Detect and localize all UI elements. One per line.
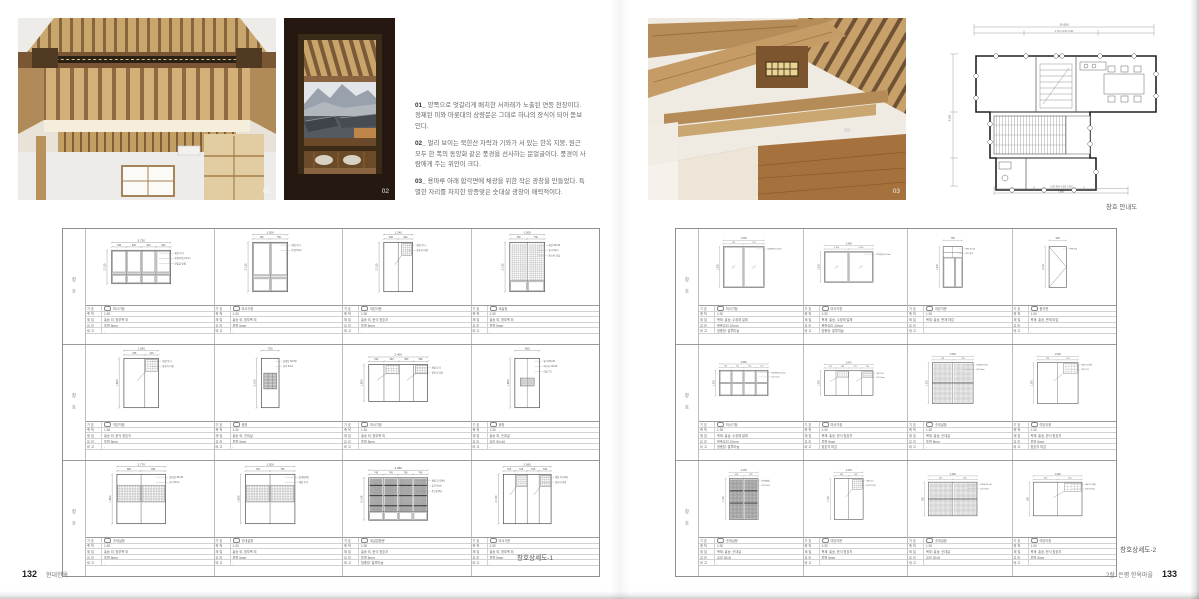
svg-text:1,500: 1,500: [741, 237, 748, 240]
svg-text:세살 무늬: 세살 무늬: [174, 251, 183, 255]
photo-attic-beams: 03: [648, 18, 906, 200]
window-symbol-icon: [361, 422, 368, 427]
svg-text:1,800: 1,800: [505, 379, 509, 386]
window-symbol-icon: [490, 306, 497, 311]
detail-drawing: 2,9757107807757101,500광창 무늬유리 5mm: [804, 345, 908, 421]
grid-row-label: 창 호: [63, 229, 86, 344]
detail-drawing: 1,0506354151,500세살 무늬창호지 마감: [86, 345, 214, 421]
window-symbol-icon: [233, 422, 240, 427]
window-symbol-icon: [104, 538, 111, 543]
caption-01: 01_양쪽으로 엇갈리게 배치한 서까래가 노출된 연등 천장이다. 정제된 미…: [415, 101, 587, 132]
detail-gap: [699, 565, 803, 576]
plan-dim-bottom-segs: 1,300 900 4,280 1,400: [1050, 187, 1074, 189]
svg-text:유리 30×8: 유리 30×8: [761, 483, 770, 487]
svg-text:620: 620: [374, 358, 379, 361]
svg-text:620: 620: [735, 474, 739, 476]
svg-text:625: 625: [854, 474, 857, 476]
detail-spec-table: 기 호여닫이문축 척1:30재 질목재: 홍송, 판재 마감유 리-비 고-: [908, 305, 1012, 333]
svg-text:1,300: 1,300: [950, 473, 957, 476]
svg-text:세살 무늬: 세살 무늬: [291, 243, 300, 247]
svg-text:2,400: 2,400: [845, 242, 852, 245]
detail-grid-row: 창 호1,2456206251,760숫대살(틀)유리 30×8기 호숫대살문축…: [676, 460, 1116, 576]
svg-text:900: 900: [1027, 496, 1029, 501]
svg-text:715: 715: [736, 366, 739, 368]
detail-spec-table: 기 호미서기창축 척1:30재 질목재: 홍송, 수장재 일체유 리복층유리 2…: [699, 305, 803, 333]
detail-spec-table: 기 호숫대살창축 척1:30재 질홍송 외, 방부목 외유 리투명 5mm비 고…: [86, 537, 214, 565]
svg-text:890: 890: [151, 468, 156, 471]
svg-text:415: 415: [150, 352, 155, 355]
window-symbol-icon: [233, 538, 240, 543]
svg-text:1,500: 1,500: [266, 462, 274, 466]
detail-cell: 1,5007457551,500숫대살(특)세살 무늬기 호숫대살창축 척1:3…: [214, 461, 343, 576]
window-symbol-icon: [361, 538, 368, 543]
detail-gap: [86, 565, 214, 576]
detail-gap: [215, 333, 343, 344]
grid-row-label: 창 호: [676, 229, 699, 344]
detail-gap: [86, 449, 214, 460]
svg-text:775: 775: [853, 366, 856, 368]
window-symbol-icon: [361, 306, 368, 311]
detail-spec-table: 기 호미서기창축 척1:30재 질목재: 홍송, 수장재 일체유 리복층유리 2…: [699, 421, 803, 449]
detail-spec-table: 기 호여닫이문축 척1:30재 질홍송 외, 한식 창호지유 리투명 5mm비 …: [343, 305, 471, 333]
detail-spec-table: 기 호광창축 척1:30재 질홍송 외, 숫대살유 리투명 5mm비 고-: [215, 421, 343, 449]
svg-text:간살 7.5: 간살 7.5: [543, 369, 552, 373]
window-symbol-icon: [233, 306, 240, 311]
svg-text:2,130: 2,130: [500, 263, 504, 270]
plan-caption: 창호 안내도: [1106, 202, 1137, 211]
photo-window-view-image: [284, 18, 395, 200]
detail-spec-table: 기 호여닫이창축 척1:30재 질목재: 홍송, 한식 창호지유 리투명 5mm…: [1013, 537, 1117, 565]
svg-text:판재 마감: 판재 마감: [1069, 247, 1077, 251]
detail-gap: [908, 565, 1012, 576]
detail-cell: 1,2456206251,760숫대살(틀)유리 30×8기 호숫대살문축 척1…: [699, 461, 803, 576]
svg-text:750: 750: [516, 236, 521, 239]
plan-dim-top-segs: 2,740 4,430 3,430: [1055, 31, 1074, 33]
detail-drawing: 1,5007507501,500세살 무늬(특)광창 무늬: [1013, 345, 1117, 421]
svg-text:1,500: 1,500: [1031, 379, 1033, 385]
grid-row-label: 창 호: [63, 461, 86, 576]
detail-cell: 2,4006206205805801,500세살 무늬창호지 마감기 호미서기창…: [342, 345, 471, 460]
detail-cell: 7502,100숫대살 30×30유리 5mm기 호광창축 척1:30재 질홍송…: [214, 345, 343, 460]
window-symbol-icon: [104, 306, 111, 311]
detail-cell: 7501,600중판 30×40문선 살대기 호여닫이문축 척1:30재 질목재…: [907, 229, 1012, 344]
svg-text:문선 살대: 문선 살대: [965, 251, 973, 255]
svg-text:650: 650: [1043, 477, 1047, 479]
svg-text:1,500: 1,500: [115, 379, 119, 386]
detail-cell: 2,9807457457457452,145세살 무늬(특)유리 5mm풍소란(…: [342, 461, 471, 576]
svg-text:940: 940: [147, 244, 152, 247]
detail-gap: [908, 449, 1012, 460]
page-gutter: [610, 0, 630, 599]
svg-text:1,760: 1,760: [828, 495, 830, 501]
svg-text:세살 무늬(특): 세살 무늬(특): [554, 475, 567, 479]
svg-text:투명(복층) 5mm: 투명(복층) 5mm: [174, 256, 190, 260]
svg-text:635: 635: [132, 352, 137, 355]
detail-cell: 1,5007507501,500투명(복층) 22mm기 호미서기창축 척1:3…: [699, 229, 803, 344]
svg-text:1,500: 1,500: [818, 379, 820, 385]
detail-cell: 2,4001,2001,2001,500투명(복층) 22mm기 호미서기창축 …: [803, 229, 908, 344]
svg-text:2,400: 2,400: [395, 353, 403, 357]
window-symbol-icon: [926, 306, 933, 311]
svg-text:숫대살 30×30: 숫대살 30×30: [282, 359, 296, 363]
detail-gap: [472, 449, 600, 460]
svg-text:세살 무늬: 세살 무늬: [162, 359, 171, 363]
detail-drawing: 1,2456206251,760세살 무늬창호지 마감: [804, 461, 908, 537]
detail-cell: 1,5007507502,130세살 무늬투명 5mm기 호미서기창축 척1:3…: [214, 229, 343, 344]
detail-gap: [215, 565, 343, 576]
svg-text:2,130: 2,130: [494, 495, 498, 502]
ceiling-main-rafters: [44, 68, 250, 120]
svg-text:1,500: 1,500: [236, 495, 240, 502]
window-symbol-icon: [822, 306, 829, 311]
svg-text:650: 650: [939, 477, 943, 479]
svg-text:900: 900: [1055, 237, 1060, 240]
detail-cell: 2,9757107807757101,500광창 무늬유리 5mm기 호미서기창…: [803, 345, 908, 460]
svg-text:750: 750: [752, 242, 756, 244]
caption-number: 03_: [415, 178, 426, 185]
svg-text:2,980: 2,980: [395, 466, 403, 470]
svg-text:숫대살 30×40: 숫대살 30×40: [976, 363, 988, 367]
detail-cell: 1,0506354151,500세살 무늬창호지 마감기 호여닫이창축 척1:3…: [86, 345, 214, 460]
svg-text:1,500: 1,500: [950, 353, 957, 356]
svg-text:515: 515: [543, 468, 548, 471]
svg-text:650: 650: [1068, 477, 1072, 479]
air-conditioner: [178, 146, 200, 155]
detail-spec-table: 기 호숫대살창축 척1:30재 질홍송 외, 방부목 외유 리투명 5mm비 고…: [215, 537, 343, 565]
detail-cell: 9001,800유리 50×40쇠시리 10×20간살 7.5기 호광창축 척1…: [471, 345, 600, 460]
svg-text:숫대살 30×30: 숫대살 30×30: [169, 475, 183, 479]
svg-text:515: 515: [507, 468, 512, 471]
svg-text:투명(복층) 22mm: 투명(복층) 22mm: [767, 247, 782, 251]
svg-text:715: 715: [724, 366, 727, 368]
svg-text:광창 무늬: 광창 무늬: [876, 371, 884, 375]
caption-03: 03_용마루 아래 합각면에 채광을 위한 작은 광창을 만들었다. 특별한 자…: [415, 177, 587, 198]
detail-grid-row: 창 호3,7509409409409402,130세살 무늬투명(복층) 5mm…: [63, 229, 599, 344]
svg-text:세살 무늬: 세살 무늬: [866, 479, 874, 483]
svg-text:1,500: 1,500: [713, 379, 715, 385]
svg-text:세살 무늬: 세살 무늬: [431, 365, 440, 369]
svg-text:900: 900: [922, 496, 924, 501]
window-symbol-icon: [926, 422, 933, 427]
svg-text:1,600: 1,600: [937, 263, 939, 269]
photo-rafter-ceiling: 01: [18, 18, 276, 200]
detail-drawing: 7501,600중판 30×40문선 살대: [908, 229, 1012, 305]
detail-spec-table: 기 호숫대살문축 척1:30재 질목재: 홍송, 숫대살유 리유리 30×8비 …: [699, 537, 803, 565]
detail-gap: [215, 449, 343, 460]
caption-text: 멀리 보이는 북한산 자락과 기와가 서 있는 한옥 지붕, 원근 모두 한 폭…: [415, 140, 586, 168]
svg-text:창호지 마감: 창호지 마감: [416, 248, 428, 252]
detail-drawing: 2,4001,2001,2001,500투명(복층) 22mm: [804, 229, 908, 305]
svg-text:580: 580: [419, 358, 424, 361]
svg-text:1,500: 1,500: [717, 263, 719, 269]
detail-cell: 1,300650650900세살 무늬(특)창호지 마감기 호여닫이창축 척1:…: [1012, 461, 1117, 576]
svg-text:2,060: 2,060: [523, 462, 531, 466]
svg-text:1,240: 1,240: [395, 230, 403, 234]
detail-gap: [804, 333, 908, 344]
detail-spec-table: 기 호미서기창축 척1:30재 질홍송 외, 방부목 외유 리투명 5mm비 고…: [343, 421, 471, 449]
caption-02: 02_멀리 보이는 북한산 자락과 기와가 서 있는 한옥 지붕, 원근 모두 …: [415, 139, 587, 170]
svg-text:유리 30×8: 유리 30×8: [980, 486, 989, 490]
eave-rafters: [304, 40, 376, 80]
detail-spec-table: 기 호미서기창축 척1:30재 질목재: 홍송, 한식 창호지유 리투명 5mm…: [804, 421, 908, 449]
detail-drawing: 1,5007507501,500투명(복층) 22mm: [699, 229, 803, 305]
detail-spec-table: 기 호숫대살창축 척1:30재 질목재: 홍송, 숫대살유 리투명 5mm비 고…: [908, 421, 1012, 449]
svg-text:625: 625: [749, 474, 752, 476]
svg-text:620: 620: [390, 358, 395, 361]
detail-drawing: 9002,130판재 마감: [1013, 229, 1117, 305]
detail-gap: [86, 333, 214, 344]
detail-spec-table: 기 호여닫이문축 척1:30재 질목재: 홍송, 한식 창호지유 리투명 5mm…: [804, 537, 908, 565]
detail-gap: [699, 333, 803, 344]
svg-text:광창 무늬: 광창 무늬: [1081, 367, 1089, 371]
book-spread: 01: [0, 0, 1199, 599]
detail-cell: 1,2456206251,760세살 무늬창호지 마감기 호여닫이문축 척1:3…: [803, 461, 908, 576]
svg-text:1,500: 1,500: [926, 379, 928, 385]
detail-drawing: 1,2456206251,760숫대살(틀)유리 30×8: [699, 461, 803, 537]
caption-text: 용마루 아래 합각면에 채광을 위한 작은 광창을 만들었다. 특별한 자리를 …: [415, 178, 585, 195]
svg-text:710: 710: [828, 366, 832, 368]
svg-text:1,245: 1,245: [845, 469, 852, 472]
detail-drawing: 1,5007507502,130세살 무늬투명 5mm: [215, 229, 343, 305]
svg-text:2,130: 2,130: [1043, 263, 1045, 269]
detail-drawing: 1,2406206202,130세살 무늬창호지 마감: [343, 229, 471, 305]
svg-text:750: 750: [961, 358, 965, 360]
clerestory-light-band: [44, 120, 250, 132]
detail-gap: [1013, 333, 1117, 344]
window-symbol-icon: [1031, 306, 1038, 311]
svg-text:숫대살(특): 숫대살(특): [298, 475, 308, 479]
svg-text:755: 755: [280, 468, 285, 471]
window-symbol-icon: [926, 538, 933, 543]
svg-text:창호지 마감: 창호지 마감: [431, 370, 443, 374]
detail-drawing: 1,300650650900숫대살 30×40유리 30×8: [908, 461, 1012, 537]
photo-attic-beams-image: [648, 18, 906, 200]
dining-table: [1104, 66, 1144, 102]
detail-cell: 1,5007507502,130세살 30×40유리 5mm풍소란 간살기 호세…: [471, 229, 600, 344]
svg-text:580: 580: [404, 358, 409, 361]
detail-spec-table: 기 호합각판축 척1:30재 질목재: 홍송, 판재 마감유 리-비 고-: [1013, 305, 1117, 333]
detail-gap: [472, 333, 600, 344]
svg-text:풍소란(특): 풍소란(특): [431, 489, 441, 493]
detail-cell: 1,5007507501,500세살 무늬(특)광창 무늬기 호여닫이창축 척1…: [1012, 345, 1117, 460]
svg-text:창호지 마감: 창호지 마감: [554, 480, 566, 484]
svg-text:940: 940: [117, 244, 122, 247]
svg-text:750: 750: [732, 242, 736, 244]
svg-text:투명(복층) 22mm: 투명(복층) 22mm: [771, 370, 786, 374]
svg-text:710: 710: [865, 366, 869, 368]
detail-drawing: 1,300650650900세살 무늬(특)창호지 마감: [1013, 461, 1117, 537]
svg-text:숫대살(틀): 숫대살(틀): [761, 479, 770, 483]
detail-spec-table: 기 호여닫이창축 척1:30재 질홍송 외, 한식 창호지유 리투명 5mm비 …: [86, 421, 214, 449]
svg-text:1,200: 1,200: [858, 247, 864, 249]
svg-text:창호지 마감: 창호지 마감: [866, 483, 876, 487]
running-title-right: 2장. 은평 한옥마을: [1106, 570, 1153, 579]
detail-drawing: 7502,100숫대살 30×30유리 5mm: [215, 345, 343, 421]
svg-text:유리 5mm: 유리 5mm: [169, 480, 179, 484]
detail-drawing: 1,5007507501,500숫대살 30×40유리 5mm: [908, 345, 1012, 421]
photo-captions: 01_양쪽으로 엇갈리게 배치한 서까래가 노출된 연등 천장이다. 정제된 미…: [415, 101, 587, 205]
svg-text:숫대살 30×40: 숫대살 30×40: [980, 482, 992, 486]
svg-text:620: 620: [839, 474, 843, 476]
detail-cell: 2,8607157157157151,500투명(복층) 22mm유리 5mm기…: [699, 345, 803, 460]
detail-drawing: 2,9807457457457452,145세살 무늬(특)유리 5mm풍소란(…: [343, 461, 471, 537]
svg-text:1,050: 1,050: [138, 346, 146, 350]
svg-text:1,200: 1,200: [834, 247, 840, 249]
kitchen-counter: [1080, 62, 1106, 70]
svg-text:620: 620: [403, 236, 408, 239]
floor-plan: 10,600 2,740 4,430 3,430 9,180: [938, 18, 1186, 196]
detail-drawing: 2,8607157157157151,500투명(복층) 22mm유리 5mm: [699, 345, 803, 421]
svg-text:2,100: 2,100: [252, 379, 256, 386]
svg-text:투명(복층) 22mm: 투명(복층) 22mm: [876, 252, 891, 256]
caption-number: 01_: [415, 102, 426, 109]
svg-text:창호지 마감: 창호지 마감: [162, 364, 174, 368]
svg-text:유리 5mm: 유리 5mm: [431, 484, 441, 488]
svg-text:940: 940: [161, 244, 166, 247]
detail-drawing: 1,7708808901,800숫대살 30×30유리 5mm: [86, 461, 214, 537]
detail-gap: [804, 449, 908, 460]
svg-text:1,500: 1,500: [523, 230, 531, 234]
svg-text:유리 5mm: 유리 5mm: [876, 375, 885, 379]
window-symbol-icon: [1031, 422, 1038, 427]
svg-text:중판 30×40: 중판 30×40: [965, 247, 976, 251]
detail-spec-table: 기 호세살분합문축 척1:30재 질홍송 외, 한식 창호지유 리투명 5mm비…: [343, 537, 471, 565]
window-symbol-icon: [490, 422, 497, 427]
svg-text:1,500: 1,500: [818, 263, 820, 269]
window-symbol-icon: [717, 538, 724, 543]
page-edge-bottom: [0, 591, 1199, 599]
svg-text:880: 880: [127, 468, 132, 471]
svg-text:2,975: 2,975: [845, 361, 852, 364]
grid-row-label: 창 호: [676, 345, 699, 460]
svg-text:1,500: 1,500: [1054, 353, 1061, 356]
svg-text:2,130: 2,130: [375, 263, 379, 270]
detail-gap: [343, 333, 471, 344]
detail-grid-row: 창 호1,0506354151,500세살 무늬창호지 마감기 호여닫이창축 척…: [63, 344, 599, 460]
svg-text:715: 715: [748, 366, 751, 368]
detail-grid-row: 창 호2,8607157157157151,500투명(복층) 22mm유리 5…: [676, 344, 1116, 460]
page-edge-right: [1190, 0, 1199, 599]
svg-text:750: 750: [533, 236, 538, 239]
svg-text:745: 745: [404, 471, 409, 474]
svg-text:3,750: 3,750: [138, 238, 146, 242]
detail-gap: [343, 449, 471, 460]
svg-text:650: 650: [963, 477, 967, 479]
running-title-left: 현대한옥: [46, 570, 68, 579]
detail-spec-table: 기 호미서기창축 척1:30재 질홍송 외, 방부목 외유 리투명 5mm비 고…: [215, 305, 343, 333]
detail-cell: 9002,130판재 마감기 호합각판축 척1:30재 질목재: 홍송, 판재 …: [1012, 229, 1117, 344]
svg-text:쇠시리 10×20: 쇠시리 10×20: [543, 364, 557, 368]
caption-text: 양쪽으로 엇갈리게 배치한 서까래가 노출된 연등 천장이다. 정제된 미와 마…: [415, 102, 582, 130]
window-symbol-icon: [1031, 538, 1038, 543]
detail-gap: [1013, 565, 1117, 576]
detail-drawing: 3,7509409409409402,130세살 무늬투명(복층) 5mm문얼굴…: [86, 229, 214, 305]
window-symbol-icon: [490, 538, 497, 543]
grid-row-label: 창 호: [63, 345, 86, 460]
svg-text:750: 750: [941, 358, 945, 360]
svg-text:715: 715: [760, 366, 763, 368]
photo-number-label: 01: [263, 188, 270, 195]
svg-text:2,860: 2,860: [741, 361, 748, 364]
footer-left: 132 현대한옥: [22, 569, 68, 579]
photo-rafter-ceiling-image: [18, 18, 276, 200]
svg-text:750: 750: [1045, 358, 1049, 360]
svg-text:2,130: 2,130: [103, 263, 107, 270]
svg-text:풍소란 간살: 풍소란 간살: [548, 253, 560, 257]
window-detail-grid-1: 창 호3,7509409409409402,130세살 무늬투명(복층) 5mm…: [62, 228, 600, 577]
plan-annex: [1066, 116, 1090, 154]
svg-text:유리 5mm: 유리 5mm: [548, 248, 558, 252]
window-symbol-icon: [717, 306, 724, 311]
detail-drawing: 2,4006206205805801,500세살 무늬창호지 마감: [343, 345, 471, 421]
svg-text:940: 940: [132, 244, 137, 247]
svg-text:745: 745: [374, 471, 379, 474]
detail-gap: [699, 449, 803, 460]
svg-text:유리 5mm: 유리 5mm: [976, 367, 985, 371]
grid-row-label: 창 호: [676, 461, 699, 576]
svg-text:750: 750: [267, 346, 272, 350]
svg-text:1,300: 1,300: [1054, 473, 1061, 476]
svg-text:745: 745: [389, 471, 394, 474]
window-symbol-icon: [104, 422, 111, 427]
detail-cell: 1,2406206202,130세살 무늬창호지 마감기 호여닫이문축 척1:3…: [342, 229, 471, 344]
svg-text:745: 745: [418, 471, 423, 474]
detail-cell: 1,300650650900숫대살 30×40유리 30×8기 호숫대살창축 척…: [907, 461, 1012, 576]
detail-drawing: 9001,800유리 50×40쇠시리 10×20간살 7.5: [472, 345, 600, 421]
page-number-left: 132: [22, 569, 37, 579]
svg-text:2,145: 2,145: [360, 495, 364, 502]
detail-cell: 1,5007507501,500숫대살 30×40유리 5mm기 호숫대살창축 …: [907, 345, 1012, 460]
detail-drawing: 1,5007507502,130세살 30×40유리 5mm풍소란 간살: [472, 229, 600, 305]
detail-spec-table: 기 호미서기창축 척1:30재 질홍송 외, 방부목 외유 리투명 5mm비 고…: [86, 305, 214, 333]
svg-text:900: 900: [524, 346, 529, 350]
window-symbol-icon: [822, 538, 829, 543]
svg-text:750: 750: [951, 237, 956, 240]
svg-text:세살 무늬: 세살 무늬: [416, 243, 425, 247]
svg-text:투명 5mm: 투명 5mm: [291, 248, 301, 252]
svg-text:1,245: 1,245: [741, 469, 748, 472]
svg-text:1,770: 1,770: [138, 462, 146, 466]
plan-dim-left-total: 9,180: [948, 114, 952, 121]
detail-spec-table: 기 호세살창축 척1:30재 질홍송 외, 방부목 외유 리투명 5mm비 고-: [472, 305, 600, 333]
detail-gap: [1013, 449, 1117, 460]
svg-text:620: 620: [389, 236, 394, 239]
detail-gap: [343, 565, 471, 576]
svg-text:1,800: 1,800: [108, 495, 112, 502]
window-symbol-icon: [822, 422, 829, 427]
svg-text:세살 무늬: 세살 무늬: [298, 480, 307, 484]
svg-text:1,500: 1,500: [360, 379, 364, 386]
detail-spec-table: 기 호여닫이창축 척1:30재 질목재: 홍송, 한식 창호지유 리투명 5mm…: [1013, 421, 1117, 449]
detail-gap: [804, 565, 908, 576]
svg-text:세살 무늬(특): 세살 무늬(특): [1081, 363, 1092, 367]
footer-right: 2장. 은평 한옥마을 133: [1106, 569, 1177, 579]
plan-dim-bottom-total: 7,880: [1058, 189, 1065, 193]
svg-text:515: 515: [531, 468, 536, 471]
svg-text:유리 50×40: 유리 50×40: [543, 359, 555, 363]
detail-gap: [908, 333, 1012, 344]
window-detail-grid-2: 창 호1,5007507501,500투명(복층) 22mm기 호미서기창축 척…: [675, 228, 1117, 577]
svg-text:유리 5mm: 유리 5mm: [282, 364, 292, 368]
detail-spec-table: 기 호광창축 척1:30재 질홍송 외, 숫대살유 리유리 50×40비 고-: [472, 421, 600, 449]
caption-number: 02_: [415, 140, 426, 147]
svg-text:1,500: 1,500: [266, 230, 274, 234]
page-number-right: 133: [1162, 569, 1177, 579]
svg-text:745: 745: [255, 468, 260, 471]
detail-drawing: 2,0605155155155152,130세살 무늬(특)창호지 마감: [472, 461, 600, 537]
photo-window-view: 02: [284, 18, 395, 200]
detail-cell: 3,7509409409409402,130세살 무늬투명(복층) 5mm문얼굴…: [86, 229, 214, 344]
